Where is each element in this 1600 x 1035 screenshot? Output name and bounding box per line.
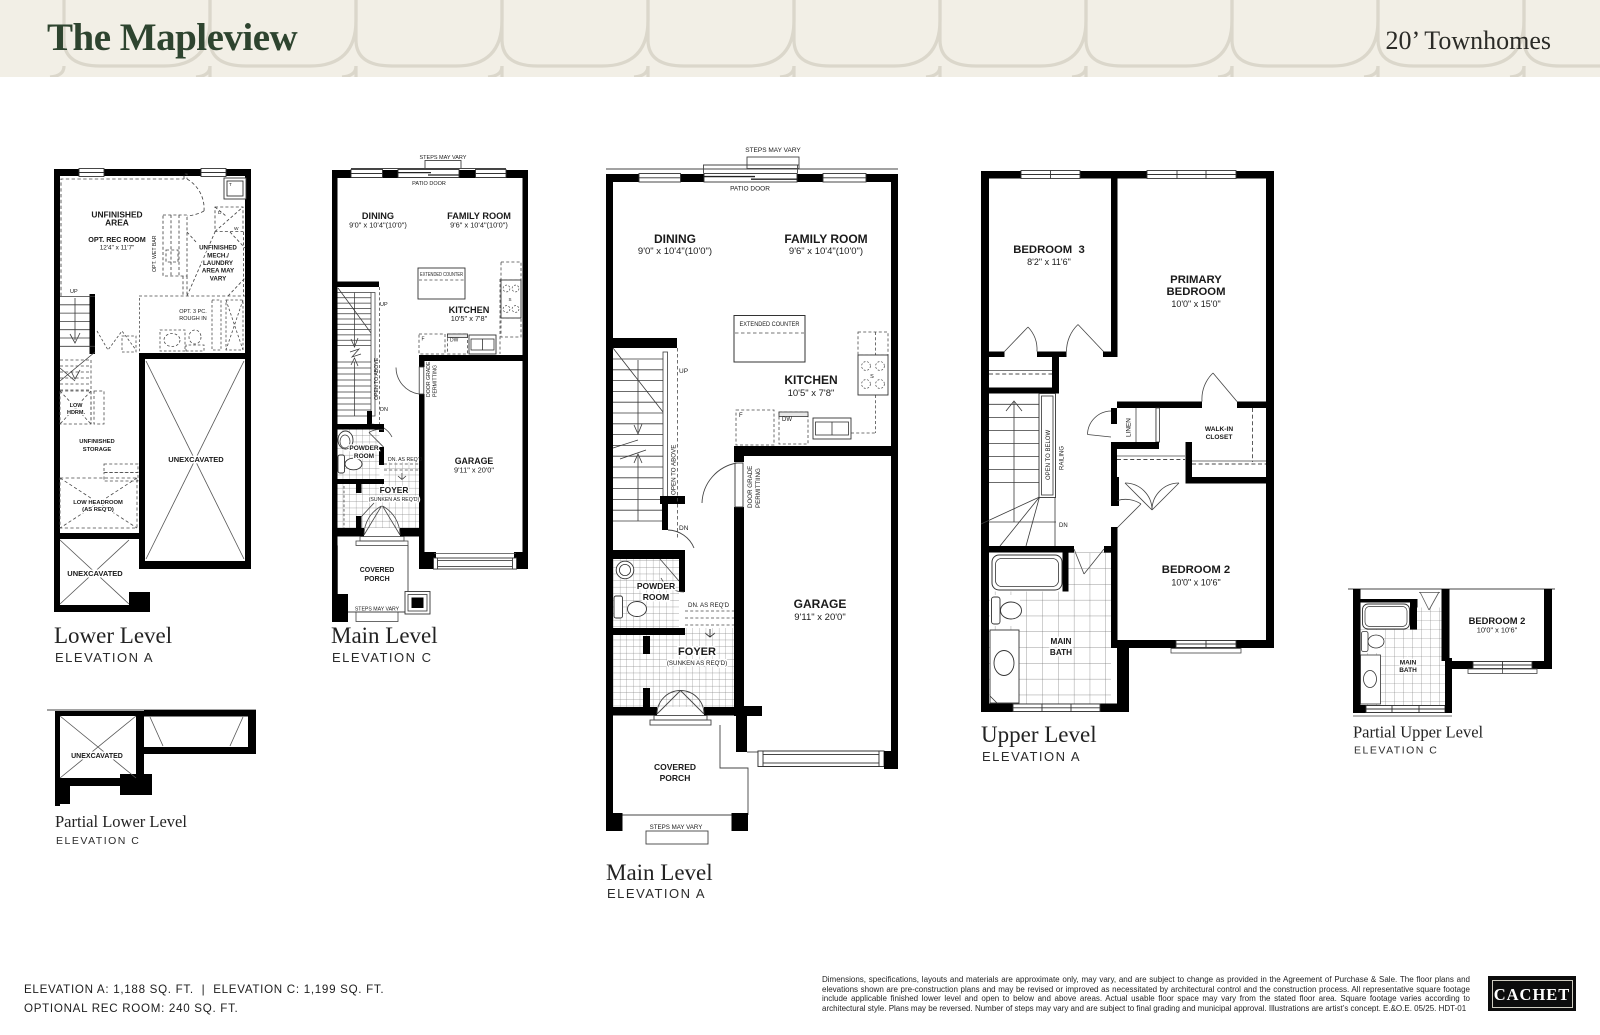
svg-text:OPEN TO ABOVE: OPEN TO ABOVE: [671, 445, 678, 495]
svg-text:ELEVATION A: ELEVATION A: [607, 886, 706, 901]
svg-text:GARAGE: GARAGE: [794, 597, 847, 611]
svg-text:S: S: [870, 374, 874, 380]
svg-text:LOW HEADROOM: LOW HEADROOM: [73, 500, 123, 506]
svg-text:EXTENDED COUNTER: EXTENDED COUNTER: [740, 322, 801, 328]
svg-text:Lower Level: Lower Level: [54, 623, 172, 648]
svg-text:Partial Lower Level: Partial Lower Level: [55, 812, 187, 831]
svg-text:PORCH: PORCH: [364, 576, 389, 583]
svg-text:DW: DW: [450, 338, 459, 344]
svg-text:MAIN: MAIN: [1400, 660, 1417, 667]
svg-text:FAMILY ROOM: FAMILY ROOM: [447, 211, 511, 221]
svg-text:10'0" x 10'6": 10'0" x 10'6": [1477, 626, 1518, 635]
svg-text:LAUNDRY: LAUNDRY: [203, 260, 234, 267]
svg-text:COVERED: COVERED: [360, 567, 395, 574]
svg-text:BEDROOM 3: BEDROOM 3: [1013, 244, 1085, 256]
svg-text:FOYER: FOYER: [678, 646, 716, 658]
svg-text:UP: UP: [679, 368, 688, 375]
svg-text:(AS REQ'D): (AS REQ'D): [82, 507, 114, 513]
svg-text:9'11" x 20'0": 9'11" x 20'0": [794, 612, 845, 623]
svg-text:UNFINISHED: UNFINISHED: [79, 439, 114, 445]
svg-text:8'2" x 11'6": 8'2" x 11'6": [1027, 257, 1071, 267]
svg-text:STEPS MAY VARY: STEPS MAY VARY: [745, 147, 801, 154]
svg-text:UNEXCAVATED: UNEXCAVATED: [168, 455, 224, 464]
svg-text:ROOM: ROOM: [643, 592, 669, 602]
svg-text:BEDROOM 2: BEDROOM 2: [1469, 615, 1526, 626]
svg-text:ROOM: ROOM: [354, 453, 374, 460]
svg-text:ELEVATION C: ELEVATION C: [1354, 745, 1438, 757]
svg-text:DN: DN: [679, 525, 689, 532]
svg-text:OPT. REC ROOM: OPT. REC ROOM: [88, 235, 146, 244]
svg-text:DINING: DINING: [362, 211, 394, 221]
svg-text:9'11" x 20'0": 9'11" x 20'0": [454, 466, 494, 475]
svg-text:DOOR GRADE: DOOR GRADE: [747, 466, 754, 508]
svg-text:10'0" x 15'0": 10'0" x 15'0": [1171, 299, 1220, 309]
svg-text:9'0" x 10'4"(10'0"): 9'0" x 10'4"(10'0"): [638, 246, 712, 257]
svg-text:POWDER: POWDER: [637, 581, 675, 591]
svg-text:BATH: BATH: [1399, 667, 1417, 674]
svg-text:WALK-IN: WALK-IN: [1205, 426, 1233, 433]
svg-text:9'6" x 10'4"(10'0"): 9'6" x 10'4"(10'0"): [789, 246, 863, 257]
svg-text:STORAGE: STORAGE: [83, 447, 112, 453]
svg-text:DW: DW: [782, 417, 792, 423]
svg-text:LOW: LOW: [70, 403, 84, 409]
svg-text:9'6" x 10'4"(10'0"): 9'6" x 10'4"(10'0"): [450, 221, 508, 230]
svg-text:DOOR GRADE: DOOR GRADE: [426, 361, 432, 397]
svg-text:AREA MAY: AREA MAY: [202, 268, 235, 275]
svg-text:F: F: [422, 337, 425, 343]
svg-text:(SUNKEN AS REQ'D): (SUNKEN AS REQ'D): [667, 660, 727, 667]
svg-text:PORCH: PORCH: [660, 773, 691, 783]
svg-text:UNEXCAVATED: UNEXCAVATED: [71, 753, 123, 760]
svg-text:DN: DN: [380, 407, 388, 413]
svg-text:COVERED: COVERED: [654, 762, 696, 772]
svg-text:PERMITTIING: PERMITTIING: [755, 468, 762, 508]
svg-text:10'5" x 7'8": 10'5" x 7'8": [788, 388, 835, 399]
svg-text:UNEXCAVATED: UNEXCAVATED: [67, 569, 123, 578]
svg-text:LINEN: LINEN: [1126, 418, 1133, 437]
svg-text:PATIO DOOR: PATIO DOOR: [412, 181, 446, 187]
svg-text:HDRM.: HDRM.: [67, 410, 85, 416]
svg-text:ELEVATION A: ELEVATION A: [55, 650, 154, 665]
svg-text:ELEVATION A: ELEVATION A: [982, 749, 1081, 764]
svg-text:D: D: [218, 210, 222, 216]
svg-text:S: S: [508, 297, 511, 302]
svg-text:F: F: [739, 413, 743, 419]
svg-text:DINING: DINING: [654, 232, 696, 246]
svg-text:DN. AS REQ'D: DN. AS REQ'D: [688, 602, 730, 609]
svg-text:UP: UP: [380, 302, 388, 308]
svg-text:GARAGE: GARAGE: [455, 456, 494, 466]
svg-text:T: T: [229, 182, 232, 187]
svg-text:Partial Upper Level: Partial Upper Level: [1353, 723, 1484, 742]
svg-text:Main Level: Main Level: [331, 623, 438, 648]
svg-text:AREA: AREA: [105, 218, 129, 228]
svg-text:BEDROOM: BEDROOM: [1167, 286, 1226, 298]
svg-text:OPT. WET BAR: OPT. WET BAR: [152, 235, 158, 272]
svg-text:BEDROOM 2: BEDROOM 2: [1162, 564, 1230, 576]
svg-text:VARY: VARY: [210, 276, 227, 283]
svg-text:ELEVATION C: ELEVATION C: [332, 650, 433, 665]
svg-text:STEPS MAY VARY: STEPS MAY VARY: [650, 824, 703, 831]
svg-text:CLOSET: CLOSET: [1206, 434, 1233, 441]
svg-text:OPEN TO ABOVE: OPEN TO ABOVE: [374, 357, 380, 400]
svg-text:ELEVATION C: ELEVATION C: [56, 835, 140, 847]
svg-text:FOYER: FOYER: [380, 485, 409, 495]
svg-text:Main Level: Main Level: [606, 860, 713, 885]
svg-text:9'0" x 10'4"(10'0"): 9'0" x 10'4"(10'0"): [349, 221, 407, 230]
svg-text:OPT. 3 PC.: OPT. 3 PC.: [179, 309, 207, 315]
svg-text:KITCHEN: KITCHEN: [784, 373, 837, 387]
svg-text:PATIO DOOR: PATIO DOOR: [730, 186, 770, 193]
svg-text:RAILING: RAILING: [1060, 446, 1066, 470]
svg-text:MECH./: MECH./: [207, 253, 229, 260]
svg-text:POWDER: POWDER: [349, 445, 379, 452]
svg-text:OPEN TO BELOW: OPEN TO BELOW: [1046, 430, 1052, 480]
svg-text:DN: DN: [1059, 523, 1068, 529]
svg-text:EXTENDED COUNTER: EXTENDED COUNTER: [420, 272, 463, 278]
svg-text:(SUNKEN AS REQ'D): (SUNKEN AS REQ'D): [369, 497, 420, 503]
svg-text:FAMILY ROOM: FAMILY ROOM: [784, 232, 867, 246]
svg-text:UP: UP: [70, 289, 78, 295]
svg-text:10'5" x 7'8": 10'5" x 7'8": [451, 314, 488, 323]
svg-text:12'4" x 11'7": 12'4" x 11'7": [100, 245, 135, 252]
svg-text:MAIN: MAIN: [1051, 637, 1072, 646]
svg-text:PERMITTING: PERMITTING: [433, 365, 439, 397]
svg-text:Upper Level: Upper Level: [981, 722, 1097, 747]
svg-text:W: W: [234, 226, 239, 232]
svg-text:UNFINISHED: UNFINISHED: [199, 245, 237, 252]
svg-text:PRIMARY: PRIMARY: [1170, 274, 1222, 286]
svg-text:ROUGH IN: ROUGH IN: [179, 316, 207, 322]
svg-text:10'0" x 10'6": 10'0" x 10'6": [1171, 578, 1220, 588]
svg-text:BATH: BATH: [1050, 648, 1072, 657]
svg-text:STEPS MAY VARY: STEPS MAY VARY: [355, 607, 400, 613]
